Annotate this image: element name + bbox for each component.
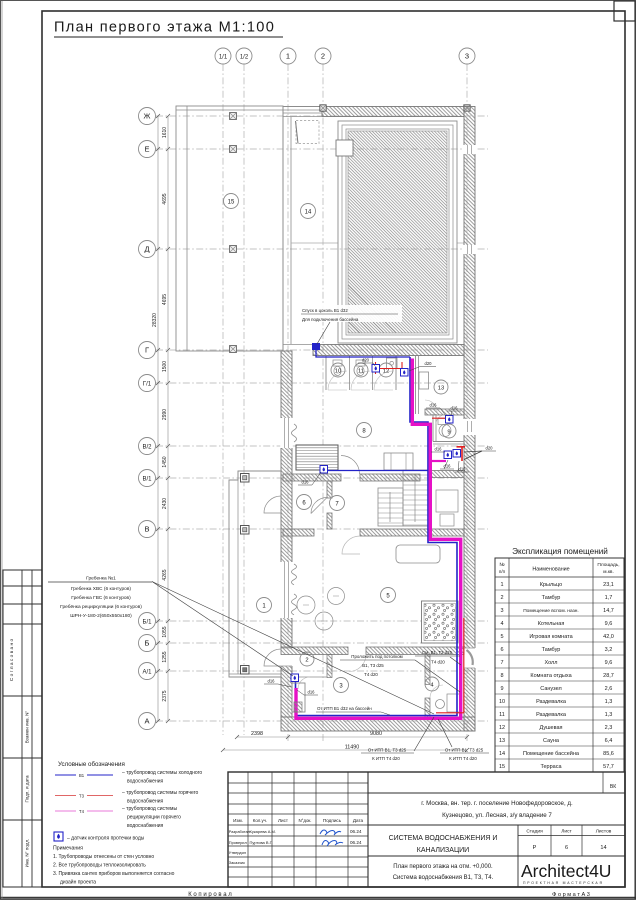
svg-text:28320: 28320 [152, 313, 158, 327]
svg-text:Проверил: Проверил [229, 840, 247, 845]
svg-text:Изм.: Изм. [233, 818, 243, 823]
svg-text:3: 3 [339, 684, 343, 690]
svg-text:4265: 4265 [162, 569, 168, 580]
svg-text:9: 9 [447, 430, 450, 436]
svg-text:водоснабжения: водоснабжения [127, 779, 163, 785]
svg-text:1/2: 1/2 [240, 55, 249, 61]
svg-text:Листов: Листов [596, 829, 612, 835]
svg-text:Т4: Т4 [79, 809, 85, 814]
svg-text:Г: Г [145, 346, 149, 355]
svg-text:d16: d16 [308, 690, 316, 695]
svg-text:От ИТП В1, Т3 d25: От ИТП В1, Т3 d25 [368, 748, 407, 753]
svg-text:d16: d16 [451, 406, 459, 411]
svg-text:Раздевалка: Раздевалка [536, 712, 567, 718]
svg-text:4695: 4695 [162, 294, 168, 305]
svg-text:1610: 1610 [162, 127, 168, 138]
svg-text:водоснабжения: водоснабжения [127, 799, 163, 805]
svg-text:В1: В1 [79, 773, 85, 778]
svg-text:Помещение вспом. назн.: Помещение вспом. назн. [523, 608, 579, 614]
svg-text:Д: Д [144, 245, 149, 254]
svg-text:Т4 d20: Т4 d20 [364, 672, 378, 677]
svg-text:3,2: 3,2 [605, 647, 613, 653]
svg-text:Стадия: Стадия [526, 829, 543, 835]
svg-text:Гребенка ГВС (6 контуров): Гребенка ГВС (6 контуров) [71, 595, 131, 601]
svg-text:1,7: 1,7 [605, 595, 613, 601]
svg-text:1: 1 [500, 582, 503, 588]
svg-text:Наименование: Наименование [532, 567, 569, 573]
svg-text:d16: d16 [435, 447, 443, 452]
svg-text:Раздевалка: Раздевалка [536, 699, 567, 705]
svg-text:14: 14 [600, 845, 606, 851]
svg-text:7: 7 [335, 502, 339, 508]
svg-text:К о п и р о в а л: К о п и р о в а л [188, 892, 232, 898]
svg-text:Условные обозначения: Условные обозначения [58, 761, 125, 768]
svg-text:№: № [499, 562, 504, 568]
svg-text:10: 10 [499, 699, 505, 705]
svg-text:Гребёнка рециркуляции (6 конту: Гребёнка рециркуляции (6 контуров) [60, 604, 142, 610]
svg-text:d16: d16 [302, 480, 310, 485]
svg-text:Спуск в цоколь В1 d32: Спуск в цоколь В1 d32 [302, 308, 348, 313]
svg-text:п/п: п/п [499, 569, 506, 574]
svg-text:85,6: 85,6 [603, 751, 614, 757]
svg-text:1,3: 1,3 [605, 712, 613, 718]
svg-text:15: 15 [228, 200, 235, 206]
svg-text:В1, Т3 d25: В1, Т3 d25 [362, 663, 384, 668]
svg-text:В/1: В/1 [142, 477, 152, 483]
svg-text:d20: d20 [362, 358, 370, 363]
svg-text:2430: 2430 [162, 498, 168, 509]
svg-text:Тамбур: Тамбур [542, 647, 561, 653]
svg-text:В: В [144, 525, 149, 534]
svg-text:9: 9 [500, 686, 503, 692]
svg-text:Б/1: Б/1 [143, 620, 153, 626]
svg-text:Крыльцо: Крыльцо [540, 582, 562, 588]
svg-text:6: 6 [500, 647, 503, 653]
svg-text:В/2: В/2 [142, 445, 152, 451]
svg-text:Г/1: Г/1 [143, 382, 152, 388]
svg-text:2375: 2375 [162, 690, 168, 701]
svg-text:Т3: Т3 [79, 794, 85, 799]
svg-text:13: 13 [438, 386, 444, 392]
svg-text:d20: d20 [425, 361, 433, 366]
svg-text:Тамбур: Тамбур [542, 595, 561, 601]
svg-text:Лист: Лист [278, 818, 289, 823]
svg-text:2: 2 [305, 658, 308, 664]
svg-text:Проложить под потолком: Проложить под потолком [351, 654, 402, 659]
svg-text:Сауна: Сауна [543, 738, 560, 744]
svg-text:ПРОЕКТНАЯ МАСТЕРСКАЯ: ПРОЕКТНАЯ МАСТЕРСКАЯ [523, 881, 604, 885]
svg-text:9080: 9080 [370, 731, 382, 737]
svg-text:От ИТП В1, Т3 d25: От ИТП В1, Т3 d25 [445, 748, 484, 753]
svg-text:– трубопровод системы холодног: – трубопровод системы холодного [122, 770, 202, 776]
svg-text:12: 12 [499, 725, 505, 731]
svg-text:11: 11 [358, 369, 364, 375]
svg-text:14: 14 [499, 751, 505, 757]
svg-text:d16: d16 [459, 467, 467, 472]
svg-text:КАНАЛИЗАЦИИ: КАНАЛИЗАЦИИ [417, 847, 469, 854]
svg-text:Подп. и дата: Подп. и дата [25, 775, 30, 803]
svg-text:7: 7 [500, 660, 503, 666]
svg-text:11: 11 [499, 712, 505, 718]
svg-text:3: 3 [465, 52, 469, 61]
svg-text:Комната отдыха: Комната отдыха [530, 673, 572, 679]
svg-text:23,1: 23,1 [603, 582, 614, 588]
svg-text:ШРН-У-180-2(650х550х180): ШРН-У-180-2(650х550х180) [70, 613, 132, 619]
svg-text:СИСТЕМА ВОДОСНАБЖЕНИЯ И: СИСТЕМА ВОДОСНАБЖЕНИЯ И [389, 835, 498, 842]
svg-text:Кукарева А.М.: Кукарева А.М. [250, 829, 276, 834]
svg-text:42,0: 42,0 [603, 634, 614, 640]
svg-text:8: 8 [362, 429, 366, 435]
svg-text:Примечания: Примечания [53, 846, 83, 852]
svg-text:14: 14 [305, 210, 312, 216]
svg-text:13: 13 [499, 738, 505, 744]
svg-text:9,6: 9,6 [605, 660, 613, 666]
svg-text:Душевая: Душевая [540, 725, 563, 731]
svg-text:Санузел: Санузел [540, 686, 561, 692]
svg-text:План первого этажа на отм. +0,: План первого этажа на отм. +0,000. [393, 864, 493, 870]
svg-text:Для подключения бассейна: Для подключения бассейна [302, 317, 359, 322]
svg-text:28,7: 28,7 [603, 673, 614, 679]
svg-text:План первого этажа М1:100: План первого этажа М1:100 [54, 20, 275, 36]
svg-text:6: 6 [565, 845, 568, 851]
svg-text:– трубопровод системы: – трубопровод системы [122, 806, 177, 812]
svg-text:8: 8 [500, 673, 503, 679]
svg-text:Игровая комната: Игровая комната [529, 634, 573, 640]
svg-text:Экспликация помещений: Экспликация помещений [512, 547, 608, 556]
svg-text:От ИТП В1 d32 на бассейн: От ИТП В1 d32 на бассейн [317, 706, 372, 711]
svg-text:Инв. N° подл.: Инв. N° подл. [25, 839, 30, 868]
svg-text:1450: 1450 [162, 456, 168, 467]
svg-text:3. Привязка сантех приборов вы: 3. Привязка сантех приборов выполняется … [53, 871, 175, 877]
svg-text:3: 3 [500, 608, 503, 614]
svg-text:57,7: 57,7 [603, 764, 614, 770]
svg-text:12: 12 [383, 369, 389, 375]
svg-text:1255: 1255 [162, 651, 168, 662]
svg-text:Гребенка ХВС (6 контуров): Гребенка ХВС (6 контуров) [71, 586, 131, 592]
svg-text:дизайн проекта: дизайн проекта [60, 879, 96, 886]
svg-text:N°док.: N°док. [298, 818, 311, 823]
svg-text:Взамен инв. N°: Взамен инв. N° [25, 711, 30, 744]
svg-text:4: 4 [430, 683, 434, 689]
svg-text:Система водоснабжения В1, Т3,: Система водоснабжения В1, Т3, Т4. [393, 875, 494, 881]
svg-text:Т4 d20: Т4 d20 [431, 660, 445, 665]
svg-text:5: 5 [386, 594, 390, 600]
svg-text:Гребенка №1: Гребенка №1 [86, 576, 116, 582]
svg-text:d16: d16 [430, 403, 438, 408]
svg-text:Помещение бассейна: Помещение бассейна [523, 750, 580, 757]
svg-text:14,7: 14,7 [603, 608, 614, 614]
svg-text:Подпись: Подпись [323, 818, 342, 823]
svg-text:Котельная: Котельная [538, 621, 565, 627]
svg-text:Терраса: Терраса [540, 764, 562, 770]
svg-text:2: 2 [321, 52, 325, 61]
svg-text:Кол.уч.: Кол.уч. [253, 818, 267, 823]
svg-text:2. Все трубопроводы теплоизоли: 2. Все трубопроводы теплоизолировать [53, 863, 146, 869]
svg-text:Лист: Лист [561, 829, 572, 835]
svg-text:А: А [144, 717, 149, 726]
svg-text:1500: 1500 [162, 361, 168, 372]
svg-text:Р: Р [533, 845, 537, 851]
svg-text:водоснабжения: водоснабжения [127, 823, 163, 829]
svg-text:рециркуляции горячего: рециркуляции горячего [127, 815, 181, 821]
svg-text:1,3: 1,3 [605, 699, 613, 705]
svg-text:5: 5 [500, 634, 503, 640]
svg-text:г. Москва, вн. тер. г. поселен: г. Москва, вн. тер. г. поселение Новофед… [421, 800, 573, 807]
svg-text:1055: 1055 [162, 626, 168, 637]
svg-text:2,6: 2,6 [605, 686, 613, 692]
svg-text:Кузнецово, ул. Лесная, з/у вла: Кузнецово, ул. Лесная, з/у владение 7 [442, 812, 552, 819]
svg-text:– датчик контроля протечки вод: – датчик контроля протечки воды [67, 836, 145, 842]
svg-text:1: 1 [262, 604, 266, 610]
svg-text:1: 1 [286, 52, 290, 61]
svg-text:Ф о р м а т А 3: Ф о р м а т А 3 [552, 892, 590, 898]
svg-text:Дата: Дата [353, 818, 364, 823]
svg-text:См. В1, Т3 d25: См. В1, Т3 d25 [422, 650, 453, 655]
svg-text:06.24: 06.24 [350, 829, 362, 834]
svg-text:Ж: Ж [144, 112, 151, 121]
svg-text:Е: Е [144, 145, 149, 154]
svg-text:Architect4U: Architect4U [521, 861, 611, 881]
svg-text:Утвердил: Утвердил [229, 850, 246, 855]
svg-text:С о г л а с о в а н о: С о г л а с о в а н о [9, 639, 15, 682]
svg-text:10: 10 [335, 369, 341, 375]
svg-text:2: 2 [500, 595, 503, 601]
svg-text:d20: d20 [486, 446, 494, 451]
svg-text:К ИТП Т4 d20: К ИТП Т4 d20 [449, 756, 477, 761]
svg-text:Заказчик: Заказчик [229, 860, 245, 865]
svg-text:Б: Б [145, 639, 150, 648]
svg-text:Пуртова В.Г.: Пуртова В.Г. [250, 840, 273, 845]
svg-text:Холл: Холл [545, 660, 558, 666]
svg-text:6,4: 6,4 [605, 738, 613, 744]
svg-text:Площадь,: Площадь, [597, 562, 619, 568]
svg-text:11490: 11490 [345, 745, 360, 751]
svg-text:2990: 2990 [162, 409, 168, 420]
svg-text:9,6: 9,6 [605, 621, 613, 627]
svg-text:– трубопровод системы горячего: – трубопровод системы горячего [122, 790, 198, 796]
svg-text:К ИТП Т4 d20: К ИТП Т4 d20 [372, 756, 400, 761]
svg-text:А/1: А/1 [142, 670, 152, 676]
svg-text:2,3: 2,3 [605, 725, 613, 731]
svg-text:ВК: ВК [610, 784, 616, 790]
svg-text:Разработал: Разработал [229, 829, 250, 834]
svg-text:4: 4 [500, 621, 503, 627]
svg-text:2398: 2398 [251, 731, 263, 737]
svg-text:d16: d16 [268, 679, 276, 684]
svg-text:15: 15 [499, 764, 505, 770]
svg-text:4695: 4695 [162, 193, 168, 204]
svg-text:м.кв.: м.кв. [603, 570, 614, 575]
svg-text:6: 6 [302, 501, 306, 507]
svg-text:1/1: 1/1 [219, 55, 228, 61]
svg-text:1. Трубопроводы отнесены от ст: 1. Трубопроводы отнесены от стен условно [53, 854, 154, 860]
svg-text:06.24: 06.24 [350, 840, 362, 845]
